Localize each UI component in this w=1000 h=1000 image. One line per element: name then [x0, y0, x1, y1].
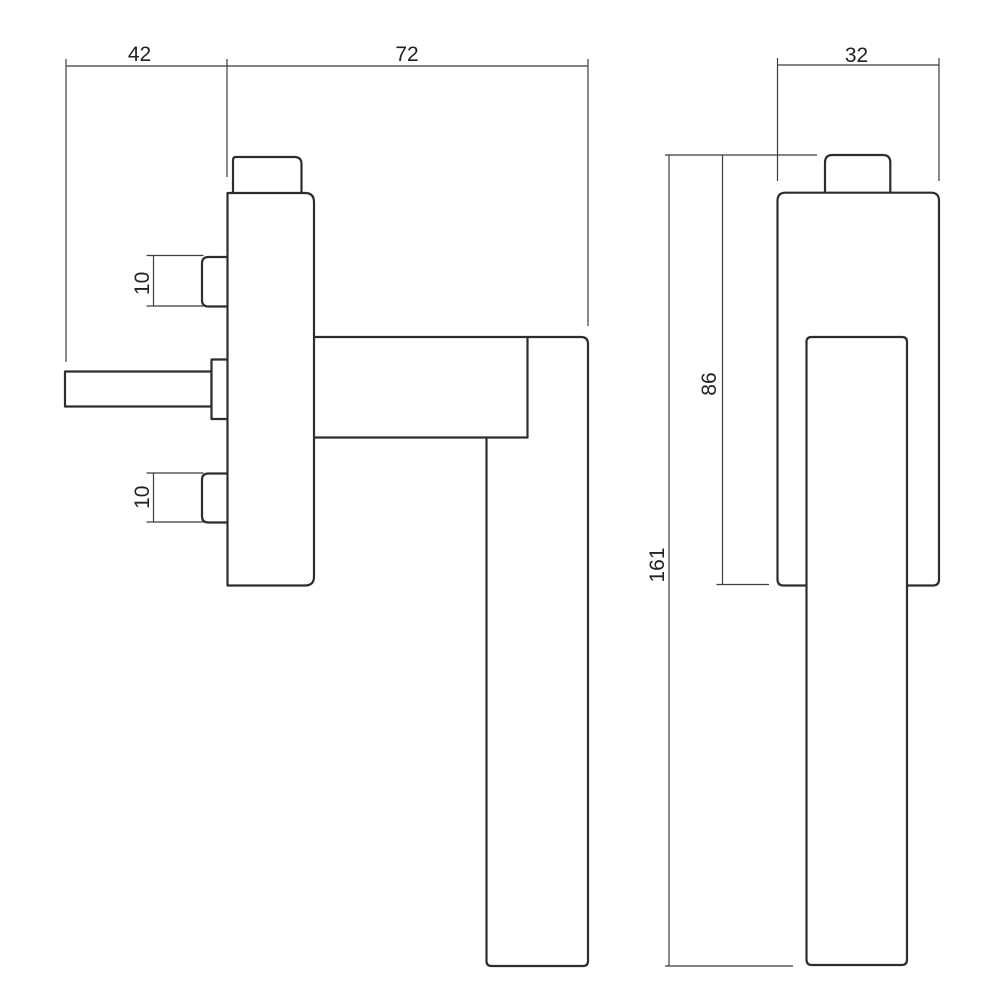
svg-text:10: 10 [131, 486, 154, 509]
svg-text:10: 10 [131, 272, 154, 295]
svg-text:161: 161 [646, 547, 669, 582]
svg-text:72: 72 [395, 43, 418, 66]
svg-text:42: 42 [128, 43, 151, 66]
svg-text:32: 32 [845, 44, 868, 67]
svg-text:86: 86 [698, 372, 721, 395]
